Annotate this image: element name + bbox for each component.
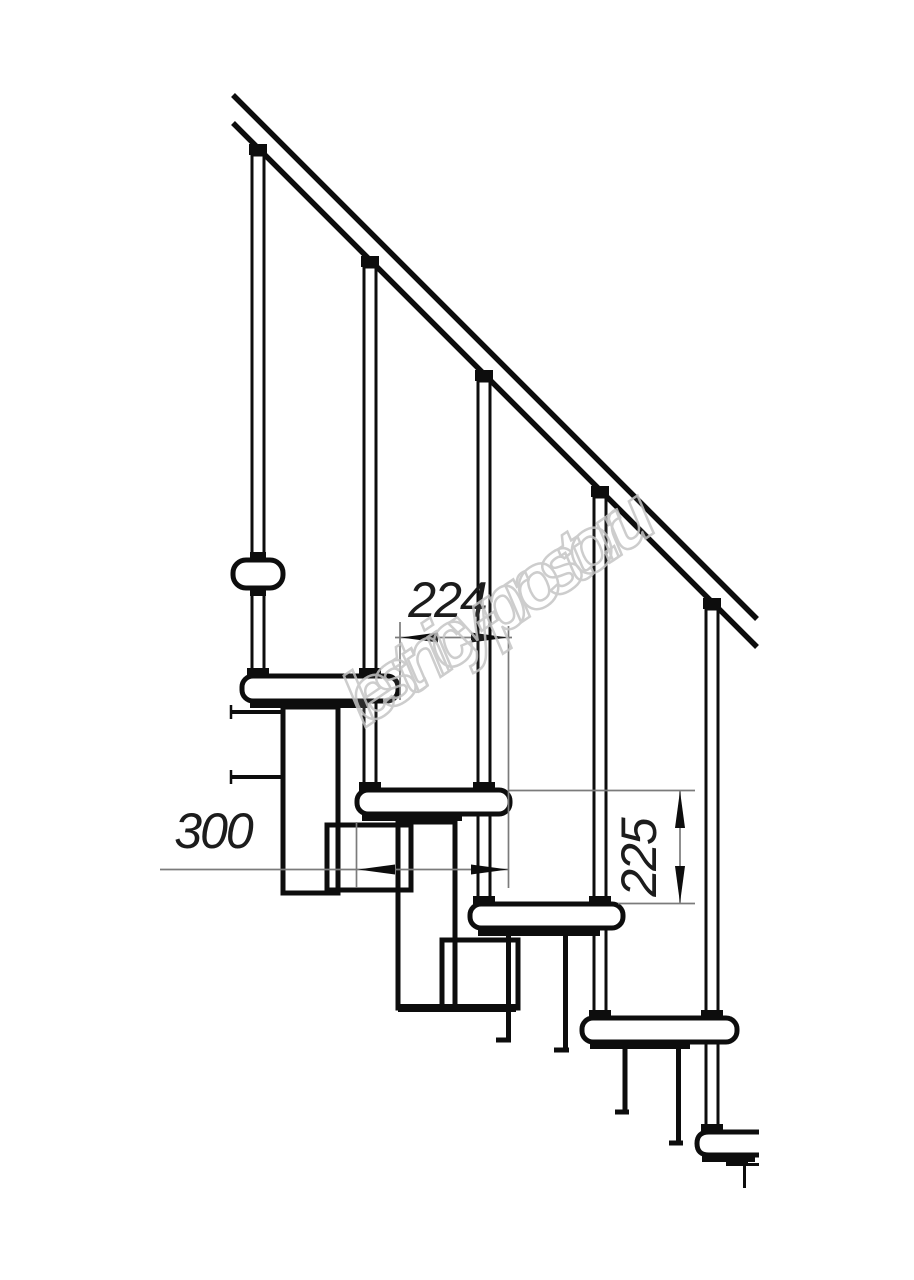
dim-224-arrow-left: [401, 633, 438, 643]
tread-2: [357, 790, 510, 814]
column-under-tread-1: [283, 707, 338, 893]
baluster-rod-5-lower: [706, 1042, 718, 1134]
dimension-label-224: 224: [395, 575, 499, 625]
upper-platform-cut-lines: [231, 705, 284, 784]
baluster-rod-1: [252, 155, 264, 678]
handrail: [233, 95, 757, 647]
staircase-drawing-canvas: 224 300 225 lestnicy-prosto.ru: [0, 0, 914, 1280]
baluster-1-bracket: [233, 552, 283, 596]
baluster-rods: [252, 155, 718, 1134]
dimension-label-225: 225: [614, 806, 666, 910]
baluster-rod-4-upper: [594, 497, 606, 906]
baluster-rod-2-upper: [364, 267, 376, 678]
column-under-tread-3-broken: [496, 932, 569, 1050]
baluster-rod-3-lower: [478, 814, 490, 906]
baluster-rod-2-lower: [364, 700, 376, 792]
handrail-lower-edge: [233, 123, 757, 647]
dim-300-arrow-left: [358, 865, 395, 875]
tread-5-partial: [697, 1132, 759, 1155]
dim-225-arrow-down: [675, 866, 685, 903]
column-under-tread-2: [398, 822, 455, 1008]
tread-3: [470, 904, 623, 928]
dimension-label-300: 300: [161, 806, 265, 856]
baluster-rod-4-lower: [594, 929, 606, 1020]
tread-1: [242, 676, 398, 701]
column-under-tread-4-broken: [615, 1046, 683, 1143]
tread-4: [582, 1018, 737, 1042]
baluster-rod-5-upper: [706, 609, 718, 1020]
staircase-line-drawing: [0, 0, 914, 1280]
handrail-upper-edge: [233, 95, 757, 619]
tread-5-cut-lines: [737, 1165, 759, 1189]
dim-225-arrow-up: [675, 791, 685, 828]
module-bottom-edge: [398, 1004, 516, 1012]
